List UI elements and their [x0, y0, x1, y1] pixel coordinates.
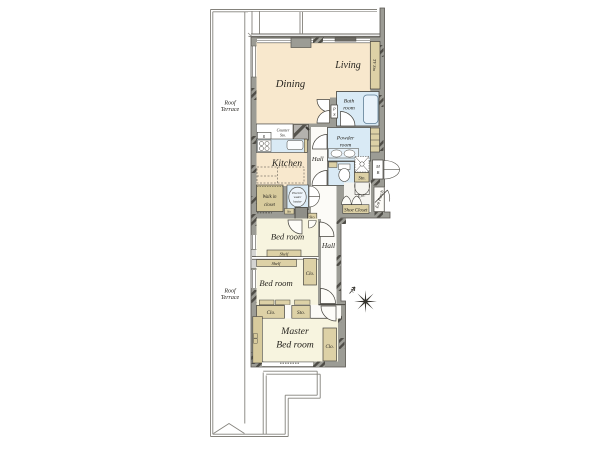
svg-text:Shelf: Shelf: [280, 252, 290, 257]
svg-text:P: P: [332, 107, 336, 112]
svg-text:Terrace: Terrace: [221, 107, 240, 113]
svg-text:Sto.: Sto.: [358, 177, 365, 182]
svg-text:Clo.: Clo.: [325, 345, 333, 350]
svg-text:Living: Living: [334, 60, 361, 71]
svg-text:Master: Master: [280, 326, 309, 337]
svg-text:Dining: Dining: [275, 79, 305, 90]
svg-text:B: B: [377, 170, 380, 175]
svg-text:Sto.: Sto.: [297, 310, 305, 316]
svg-text:Roof: Roof: [223, 100, 237, 107]
svg-text:Counter: Counter: [277, 129, 290, 133]
svg-text:Kitchen: Kitchen: [271, 158, 302, 169]
svg-text:Clo.: Clo.: [306, 272, 314, 277]
svg-text:TV Sto: TV Sto: [372, 59, 377, 72]
svg-text:Shelf: Shelf: [272, 261, 282, 266]
svg-text:Powder: Powder: [336, 136, 355, 142]
svg-text:Sto.: Sto.: [280, 133, 286, 137]
svg-text:M: M: [375, 164, 380, 169]
svg-text:heater: heater: [293, 199, 302, 203]
svg-text:room: room: [343, 106, 355, 112]
svg-text:Hall: Hall: [311, 156, 324, 163]
svg-text:Terrace: Terrace: [221, 295, 240, 301]
svg-text:Clo.: Clo.: [267, 310, 276, 316]
svg-text:Hall: Hall: [321, 241, 335, 250]
svg-text:Sto: Sto: [287, 210, 291, 214]
svg-text:Bath: Bath: [344, 99, 355, 105]
svg-text:Bed room: Bed room: [276, 340, 314, 351]
svg-text:closet: closet: [264, 203, 276, 208]
svg-text:Roof: Roof: [223, 288, 237, 295]
svg-text:room: room: [340, 143, 352, 149]
svg-text:Bed room: Bed room: [259, 278, 292, 288]
svg-text:Shoe Closet: Shoe Closet: [344, 209, 368, 214]
svg-text:Walk in: Walk in: [262, 195, 277, 200]
